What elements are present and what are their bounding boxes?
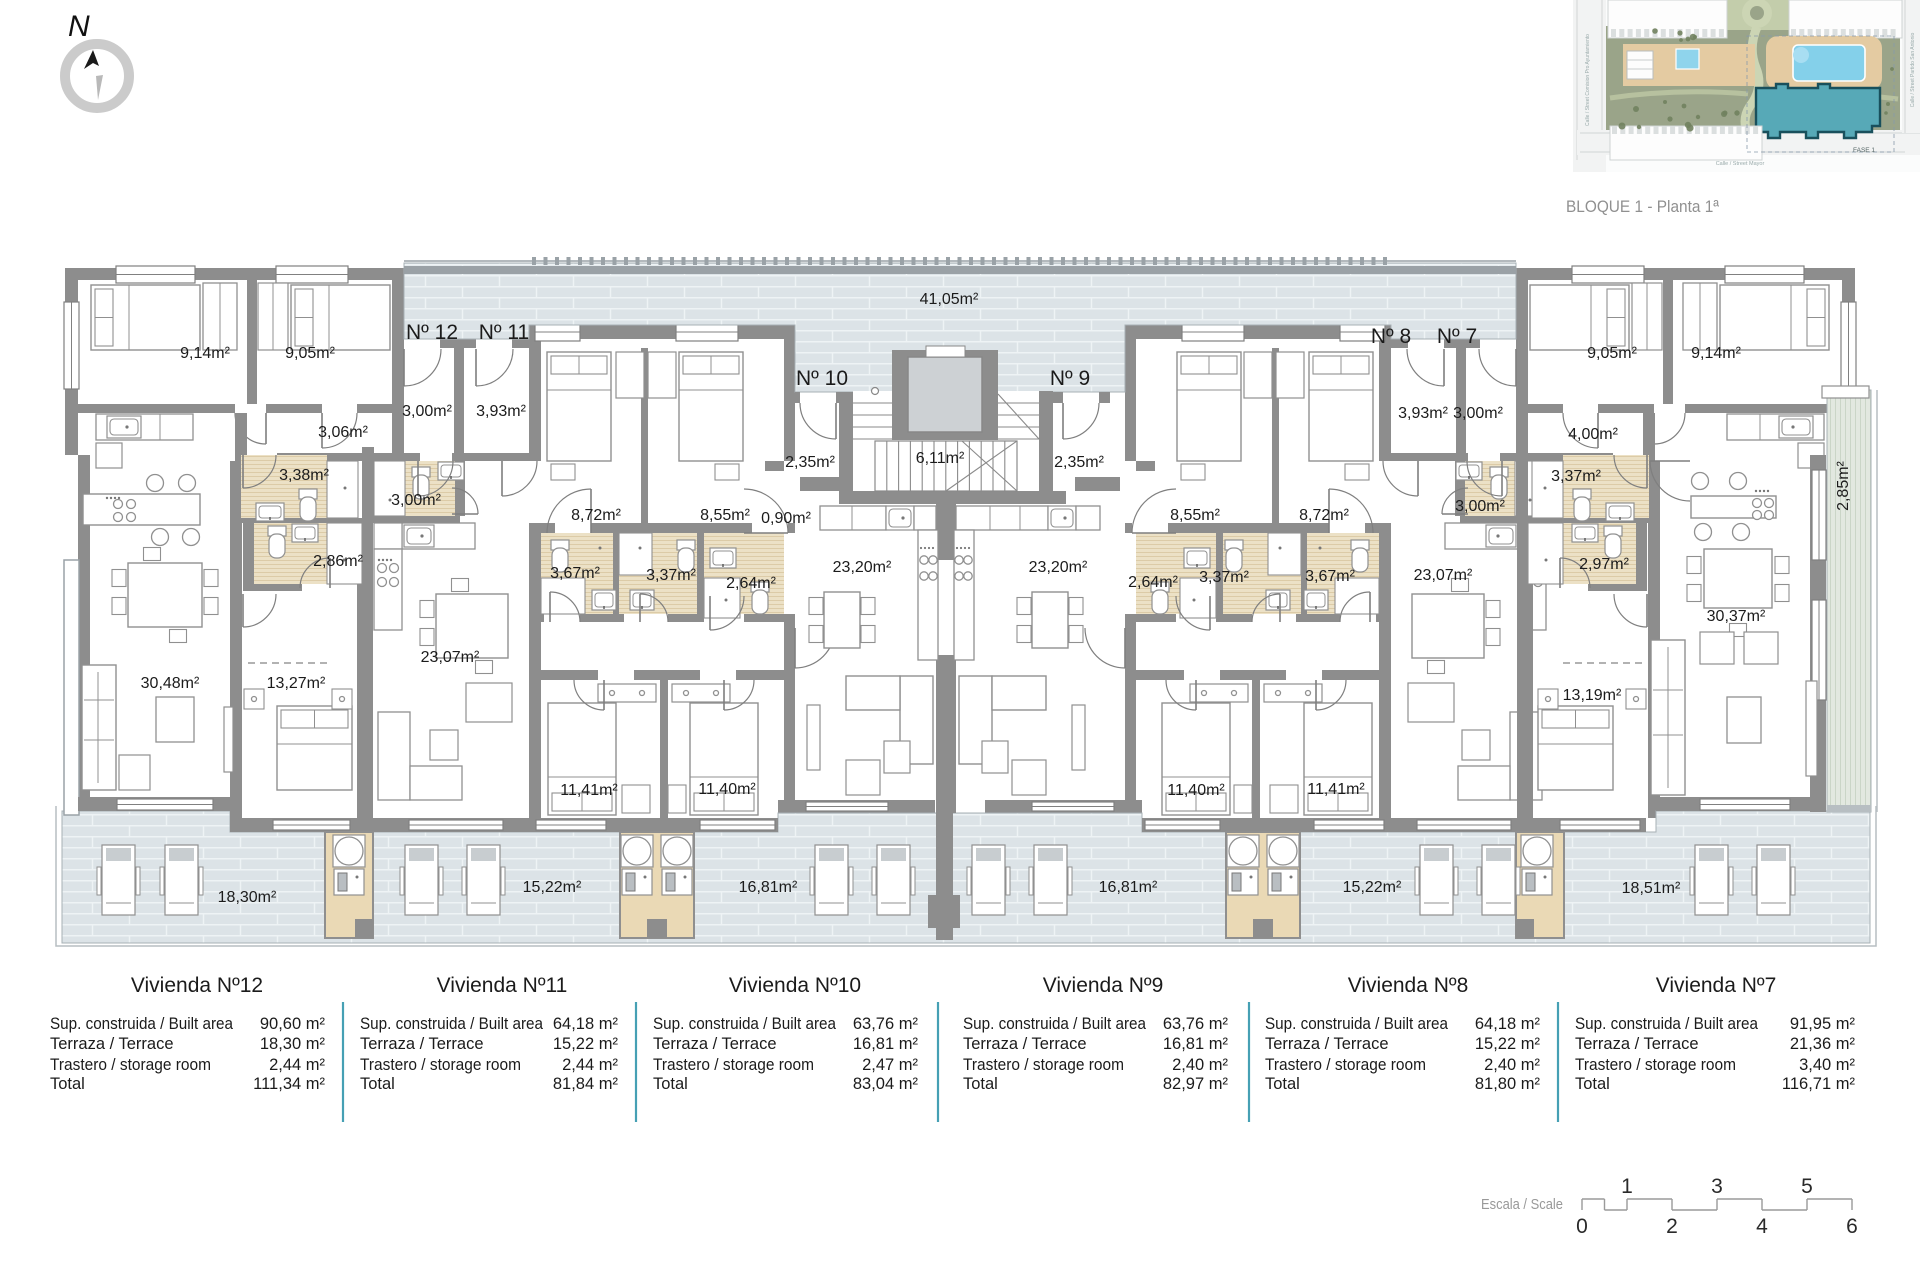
svg-text:63,76 m²: 63,76 m²: [1163, 1015, 1229, 1033]
svg-text:15,22m²: 15,22m²: [523, 879, 582, 896]
svg-text:Total: Total: [360, 1075, 395, 1093]
svg-text:11,41m²: 11,41m²: [560, 782, 618, 799]
svg-text:3,67m²: 3,67m²: [1305, 568, 1355, 585]
svg-text:Terraza / Terrace: Terraza / Terrace: [653, 1035, 777, 1053]
svg-text:3: 3: [1711, 1175, 1723, 1198]
svg-text:Terraza / Terrace: Terraza / Terrace: [50, 1035, 174, 1053]
svg-text:111,34 m²: 111,34 m²: [253, 1075, 325, 1093]
svg-text:Calle / Street Mayor: Calle / Street Mayor: [1716, 161, 1765, 167]
svg-text:Terraza / Terrace: Terraza / Terrace: [1575, 1035, 1699, 1053]
svg-text:18,30 m²: 18,30 m²: [260, 1035, 326, 1053]
svg-text:11,40m²: 11,40m²: [1167, 782, 1225, 799]
svg-text:81,80 m²: 81,80 m²: [1475, 1075, 1541, 1093]
svg-text:2,35m²: 2,35m²: [1054, 454, 1104, 471]
svg-text:Sup. construida / Built area: Sup. construida / Built area: [50, 1015, 234, 1033]
svg-text:3,37m²: 3,37m²: [1199, 569, 1249, 586]
svg-text:Total: Total: [653, 1075, 688, 1093]
svg-text:3,00m²: 3,00m²: [1455, 498, 1505, 515]
svg-text:Vivienda Nº8: Vivienda Nº8: [1348, 974, 1469, 997]
svg-text:3,38m²: 3,38m²: [279, 467, 329, 484]
svg-text:FASE 1: FASE 1: [1853, 147, 1875, 154]
svg-text:N: N: [68, 10, 90, 43]
svg-text:41,05m²: 41,05m²: [920, 291, 979, 308]
svg-text:Terraza / Terrace: Terraza / Terrace: [360, 1035, 484, 1053]
svg-text:Trastero / storage room: Trastero / storage room: [50, 1056, 211, 1074]
svg-text:30,37m²: 30,37m²: [1707, 608, 1766, 625]
svg-text:0: 0: [1576, 1215, 1588, 1238]
svg-text:0,90m²: 0,90m²: [761, 510, 811, 527]
svg-text:Sup. construida / Built area: Sup. construida / Built area: [1575, 1015, 1759, 1033]
svg-text:Total: Total: [1265, 1075, 1300, 1093]
svg-text:Nº 10: Nº 10: [796, 367, 848, 390]
svg-text:Nº 9: Nº 9: [1050, 367, 1090, 390]
svg-text:Vivienda Nº10: Vivienda Nº10: [729, 974, 861, 997]
svg-text:3,37m²: 3,37m²: [1551, 468, 1601, 485]
svg-text:Trastero / storage room: Trastero / storage room: [653, 1056, 814, 1074]
svg-text:9,05m²: 9,05m²: [285, 345, 335, 362]
svg-text:Total: Total: [1575, 1075, 1610, 1093]
svg-text:2,97m²: 2,97m²: [1579, 556, 1629, 573]
svg-text:23,20m²: 23,20m²: [1029, 559, 1088, 576]
svg-text:81,84 m²: 81,84 m²: [553, 1075, 619, 1093]
svg-text:3,93m²: 3,93m²: [1398, 405, 1448, 422]
svg-text:3,00m²: 3,00m²: [1453, 405, 1503, 422]
svg-text:64,18 m²: 64,18 m²: [553, 1015, 619, 1033]
svg-text:Nº 11: Nº 11: [479, 321, 529, 344]
svg-text:11,41m²: 11,41m²: [1307, 781, 1365, 798]
svg-text:3,00m²: 3,00m²: [391, 492, 441, 509]
svg-text:2,64m²: 2,64m²: [1128, 574, 1178, 591]
svg-text:3,40 m²: 3,40 m²: [1799, 1056, 1855, 1074]
svg-text:23,07m²: 23,07m²: [1414, 567, 1473, 584]
svg-text:15,22 m²: 15,22 m²: [1475, 1035, 1541, 1053]
svg-text:Nº 7: Nº 7: [1437, 325, 1477, 348]
svg-text:18,30m²: 18,30m²: [218, 889, 277, 906]
svg-text:4: 4: [1756, 1215, 1768, 1238]
svg-text:8,55m²: 8,55m²: [700, 507, 750, 524]
svg-text:23,07m²: 23,07m²: [421, 649, 480, 666]
svg-text:116,71 m²: 116,71 m²: [1782, 1075, 1856, 1093]
svg-text:83,04 m²: 83,04 m²: [853, 1075, 919, 1093]
svg-text:16,81 m²: 16,81 m²: [853, 1035, 919, 1053]
svg-text:2: 2: [1666, 1215, 1678, 1238]
svg-text:Sup. construida / Built area: Sup. construida / Built area: [360, 1015, 544, 1033]
svg-text:Escala / Scale: Escala / Scale: [1481, 1196, 1563, 1213]
svg-text:6: 6: [1846, 1215, 1858, 1238]
svg-text:91,95 m²: 91,95 m²: [1790, 1015, 1856, 1033]
svg-text:Calle / Street Partido San Ant: Calle / Street Partido San Antonio: [1910, 33, 1916, 108]
svg-text:3,06m²: 3,06m²: [318, 424, 368, 441]
svg-text:21,36 m²: 21,36 m²: [1790, 1035, 1856, 1053]
svg-text:Total: Total: [50, 1075, 85, 1093]
svg-text:13,19m²: 13,19m²: [1563, 687, 1622, 704]
svg-text:3,67m²: 3,67m²: [550, 565, 600, 582]
svg-text:6,11m²: 6,11m²: [916, 450, 965, 467]
svg-text:16,81 m²: 16,81 m²: [1163, 1035, 1229, 1053]
svg-text:30,48m²: 30,48m²: [141, 675, 200, 692]
svg-text:Nº 8: Nº 8: [1371, 325, 1411, 348]
svg-text:8,55m²: 8,55m²: [1170, 507, 1220, 524]
svg-text:Sup. construida / Built area: Sup. construida / Built area: [653, 1015, 837, 1033]
svg-text:Vivienda Nº9: Vivienda Nº9: [1043, 974, 1164, 997]
svg-text:11,40m²: 11,40m²: [698, 781, 756, 798]
svg-text:Vivienda Nº11: Vivienda Nº11: [437, 974, 568, 997]
svg-text:13,27m²: 13,27m²: [267, 675, 326, 692]
svg-text:Vivienda Nº7: Vivienda Nº7: [1656, 974, 1777, 997]
svg-text:Calle / Street Comision Pro Ay: Calle / Street Comision Pro Ayuntamiento: [1585, 34, 1591, 126]
svg-text:16,81m²: 16,81m²: [739, 879, 798, 896]
svg-text:15,22m²: 15,22m²: [1343, 879, 1402, 896]
svg-text:Terraza / Terrace: Terraza / Terrace: [1265, 1035, 1389, 1053]
svg-text:Nº 12: Nº 12: [406, 321, 458, 344]
svg-text:8,72m²: 8,72m²: [571, 507, 621, 524]
svg-text:3,93m²: 3,93m²: [476, 403, 526, 420]
svg-text:2,35m²: 2,35m²: [785, 454, 835, 471]
svg-text:BLOQUE 1 - Planta 1ª: BLOQUE 1 - Planta 1ª: [1566, 197, 1720, 216]
svg-text:15,22 m²: 15,22 m²: [553, 1035, 619, 1053]
svg-text:Vivienda Nº12: Vivienda Nº12: [131, 974, 263, 997]
svg-text:8,72m²: 8,72m²: [1299, 507, 1349, 524]
svg-text:90,60 m²: 90,60 m²: [260, 1015, 326, 1033]
svg-text:Trastero / storage room: Trastero / storage room: [360, 1056, 521, 1074]
svg-text:9,14m²: 9,14m²: [180, 345, 230, 362]
svg-text:16,81m²: 16,81m²: [1099, 879, 1158, 896]
svg-text:Trastero / storage room: Trastero / storage room: [1265, 1056, 1426, 1074]
svg-text:2,86m²: 2,86m²: [313, 553, 363, 570]
svg-text:2,47 m²: 2,47 m²: [862, 1056, 918, 1074]
svg-text:Terraza / Terrace: Terraza / Terrace: [963, 1035, 1087, 1053]
svg-text:23,20m²: 23,20m²: [833, 559, 892, 576]
svg-text:Total: Total: [963, 1075, 998, 1093]
svg-text:2,40 m²: 2,40 m²: [1172, 1056, 1228, 1074]
svg-text:9,05m²: 9,05m²: [1587, 345, 1637, 362]
svg-text:2,44 m²: 2,44 m²: [269, 1056, 325, 1074]
svg-text:3,00m²: 3,00m²: [402, 403, 452, 420]
svg-text:82,97 m²: 82,97 m²: [1163, 1075, 1229, 1093]
svg-text:5: 5: [1801, 1175, 1813, 1198]
svg-text:3,37m²: 3,37m²: [646, 567, 696, 584]
svg-text:2,40 m²: 2,40 m²: [1484, 1056, 1540, 1074]
svg-text:Sup. construida / Built area: Sup. construida / Built area: [963, 1015, 1147, 1033]
svg-text:Sup. construida / Built area: Sup. construida / Built area: [1265, 1015, 1449, 1033]
svg-text:Trastero / storage room: Trastero / storage room: [1575, 1056, 1736, 1074]
svg-text:63,76 m²: 63,76 m²: [853, 1015, 919, 1033]
svg-text:9,14m²: 9,14m²: [1691, 345, 1741, 362]
svg-text:1: 1: [1621, 1175, 1633, 1198]
svg-text:2,64m²: 2,64m²: [726, 575, 776, 592]
svg-text:Trastero / storage room: Trastero / storage room: [963, 1056, 1124, 1074]
svg-text:64,18 m²: 64,18 m²: [1475, 1015, 1541, 1033]
svg-text:4,00m²: 4,00m²: [1568, 426, 1618, 443]
svg-text:2,44 m²: 2,44 m²: [562, 1056, 618, 1074]
svg-text:2,85m²: 2,85m²: [1835, 460, 1852, 510]
svg-text:18,51m²: 18,51m²: [1622, 880, 1681, 897]
